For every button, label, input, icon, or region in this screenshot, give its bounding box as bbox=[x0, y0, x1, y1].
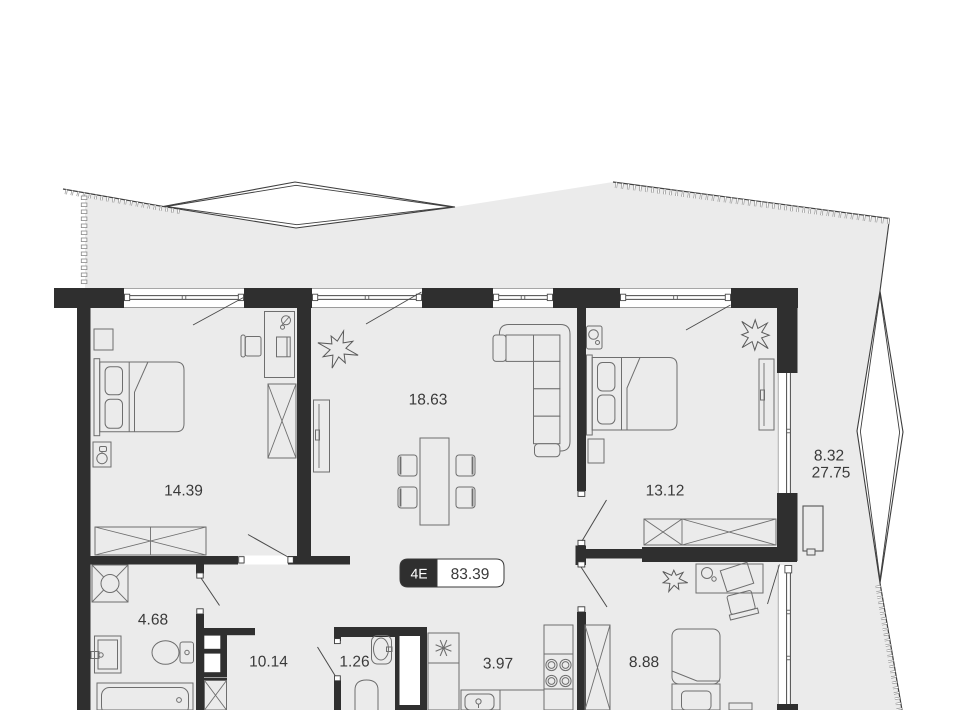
svg-text:8.88: 8.88 bbox=[629, 654, 659, 671]
svg-text:1.26: 1.26 bbox=[339, 654, 369, 671]
svg-text:4.68: 4.68 bbox=[138, 612, 168, 629]
svg-text:8.32: 8.32 bbox=[814, 448, 844, 465]
svg-text:13.12: 13.12 bbox=[646, 483, 685, 500]
svg-text:83.39: 83.39 bbox=[451, 566, 490, 583]
svg-text:27.75: 27.75 bbox=[812, 465, 851, 482]
svg-text:18.63: 18.63 bbox=[409, 392, 448, 409]
svg-text:3.97: 3.97 bbox=[483, 656, 513, 673]
svg-text:4E: 4E bbox=[410, 566, 427, 582]
svg-text:10.14: 10.14 bbox=[249, 654, 288, 671]
svg-text:14.39: 14.39 bbox=[164, 483, 203, 500]
